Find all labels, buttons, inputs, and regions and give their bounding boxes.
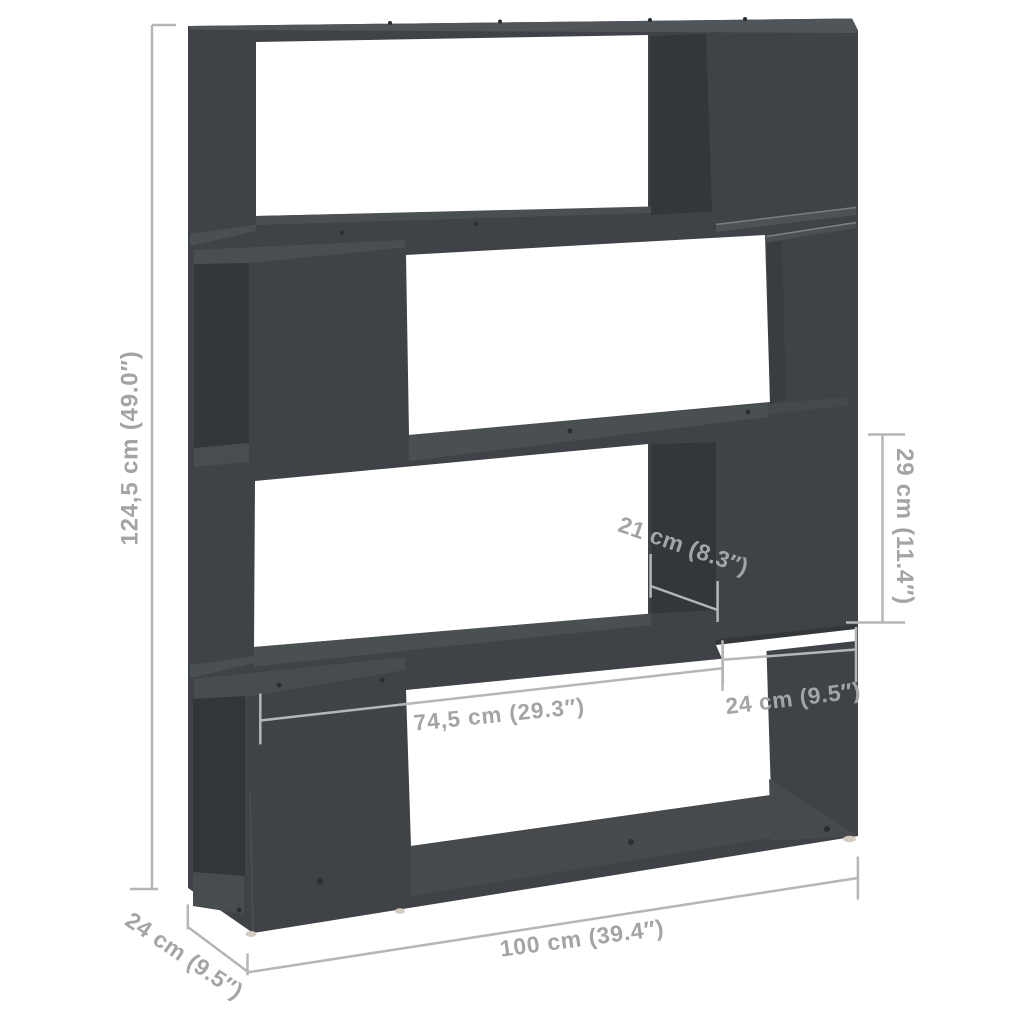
svg-text:29 cm (11.4″): 29 cm (11.4″) <box>891 448 918 605</box>
svg-text:24 cm (9.5″): 24 cm (9.5″) <box>121 907 248 1005</box>
svg-text:124,5 cm (49.0″): 124,5 cm (49.0″) <box>117 350 144 545</box>
